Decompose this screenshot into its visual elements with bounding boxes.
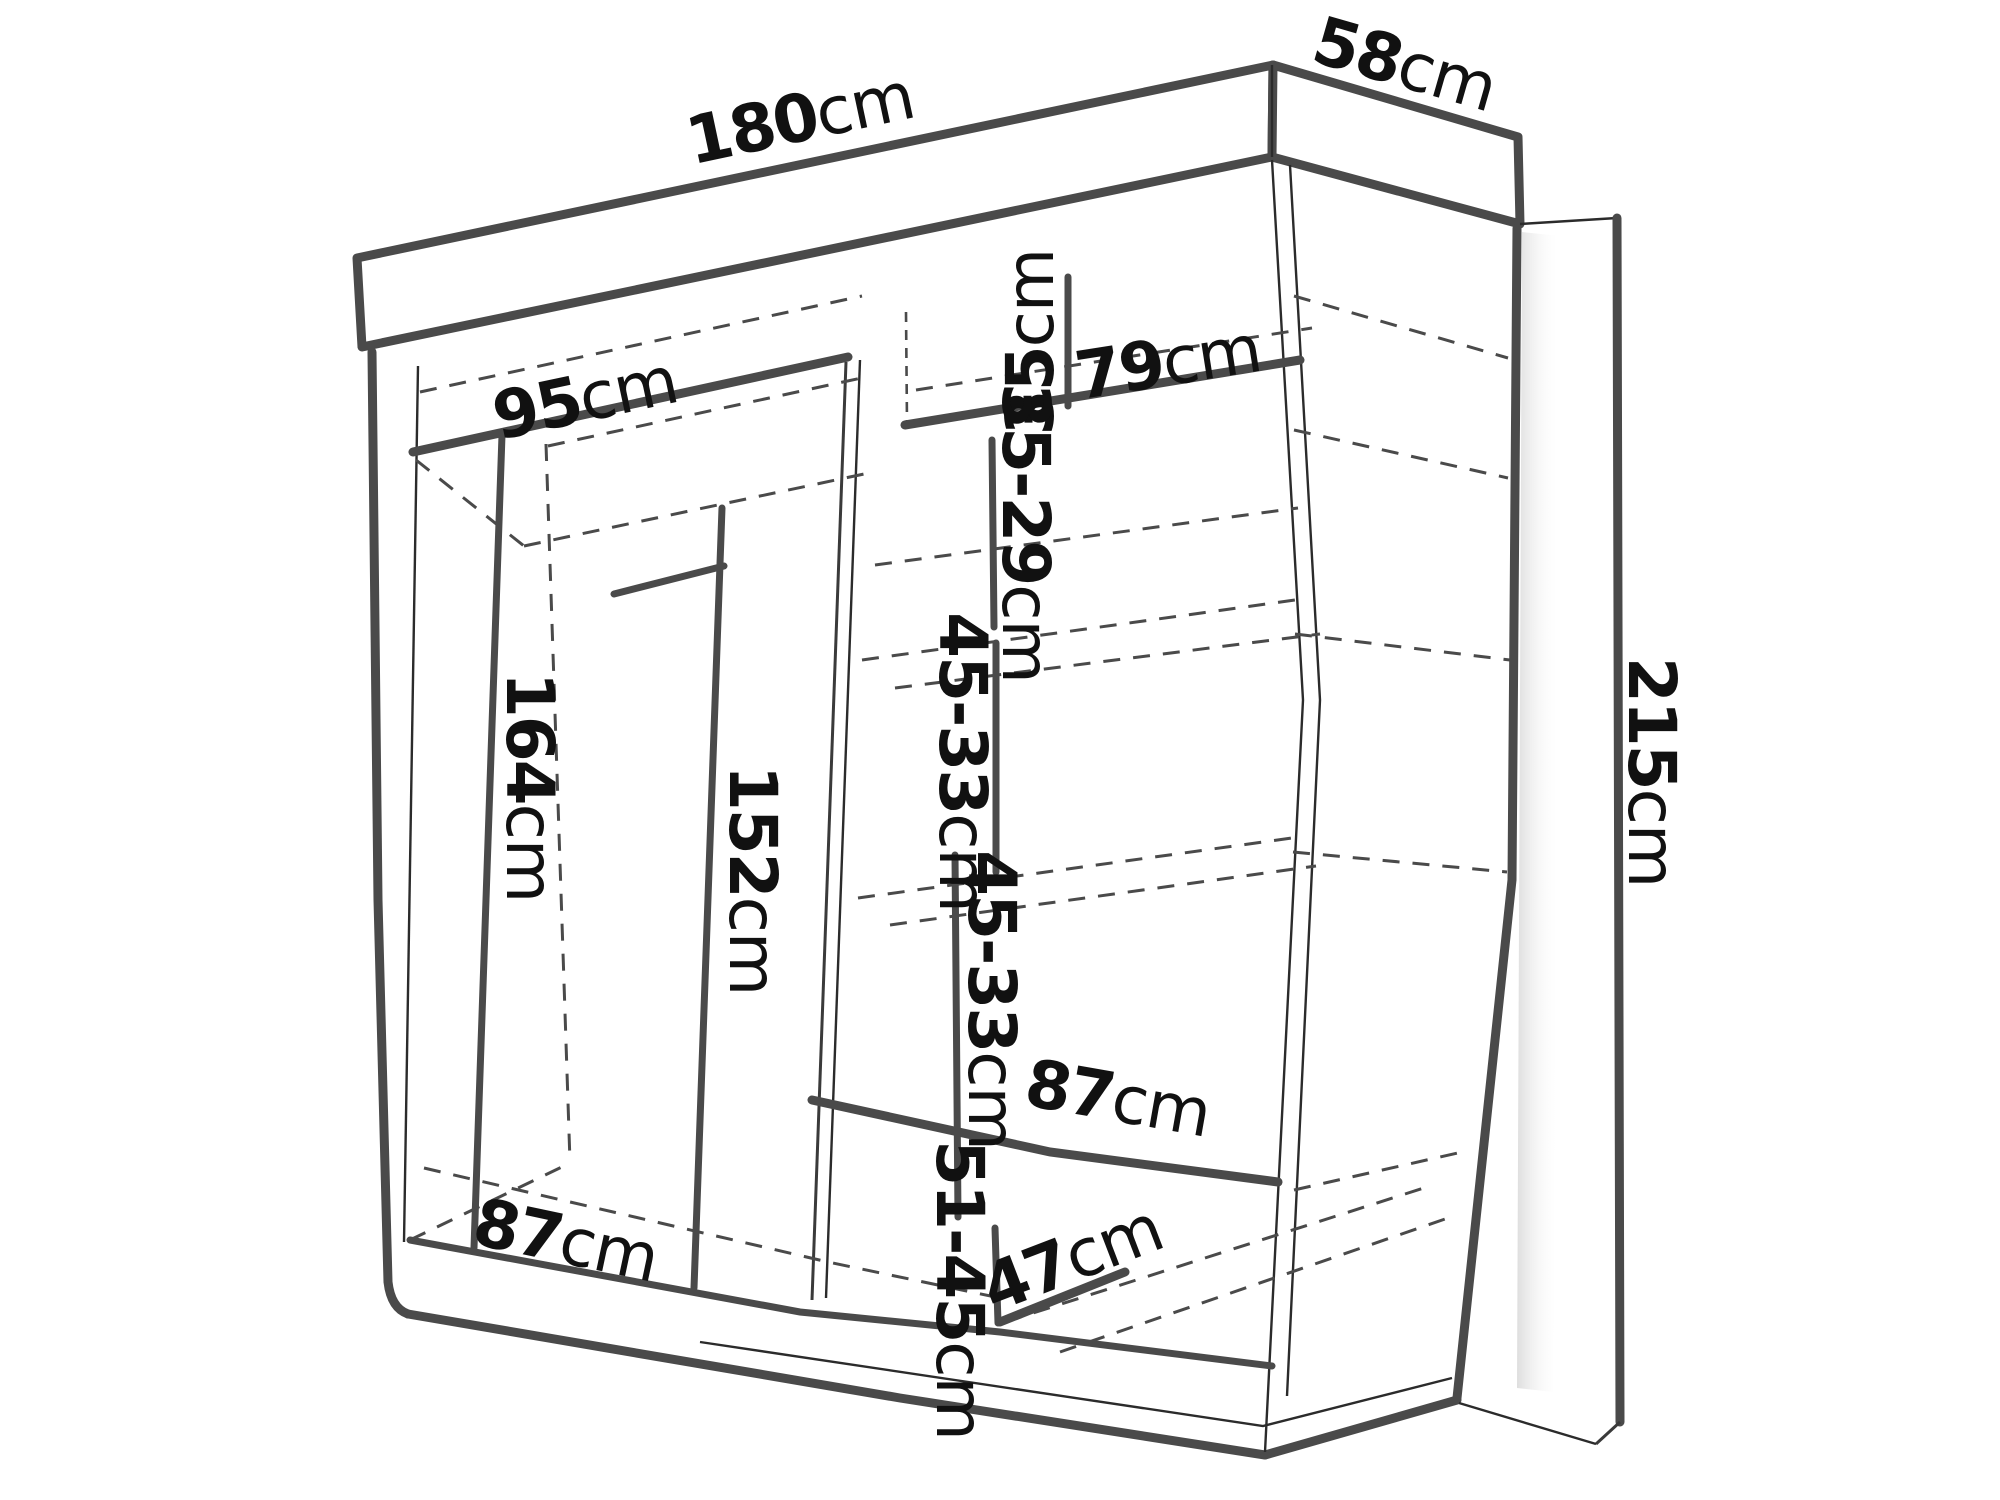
- dim-left-bay-width: 87cm: [467, 1183, 665, 1297]
- right-back-edge: [1457, 228, 1517, 1398]
- top-shelf-left-support: [906, 312, 907, 423]
- dim-rod-height: 164cm: [492, 672, 569, 902]
- side-panel-bottom-edge: [1596, 1422, 1620, 1444]
- dim-right-shelf-width: 87cm: [1020, 1044, 1217, 1152]
- dim-line-152-tick: [614, 566, 724, 594]
- side-depth-dashed-4: [1293, 852, 1507, 872]
- crown-top-panel: [357, 65, 1520, 347]
- side-depth-dashed-2: [1294, 430, 1508, 478]
- left-wall-inner-edge: [404, 366, 418, 1242]
- dim-top-shelf-width: 79cm: [1070, 309, 1266, 414]
- rod-back-dashed: [524, 474, 864, 546]
- shelf-level3-front-dashed: [858, 838, 1292, 898]
- bottom-front-edge: [408, 1314, 1265, 1455]
- side-depth-dashed-5: [1294, 1152, 1462, 1190]
- rod-depth-dashed: [416, 460, 524, 546]
- side-depth-dashed-3: [1295, 634, 1510, 660]
- center-divider-front: [812, 362, 846, 1300]
- center-divider-back: [826, 360, 860, 1298]
- diagram-canvas: 180cm 58cm 215cm 95cm 79cm 35cm 35-29cm …: [0, 0, 2000, 1500]
- right-wall-inner-edge: [1287, 165, 1320, 1396]
- side-panel-bottom-link: [1459, 1403, 1596, 1444]
- side-shading: [1517, 232, 1560, 1392]
- shelf-pos-29-dashed: [875, 508, 1298, 565]
- side-panel-top-edge: [1520, 218, 1617, 224]
- dim-height-side: 215cm: [1614, 657, 1691, 887]
- left-edge: [372, 352, 408, 1314]
- front-right-edge: [1265, 160, 1303, 1452]
- side-depth-dashed-1: [1294, 296, 1508, 358]
- left-bay: [413, 357, 860, 1300]
- dim-inner-height: 152cm: [715, 765, 792, 995]
- dim-mid-shelf-gap-2: 45-33cm: [954, 850, 1031, 1150]
- dim-bottom-depth: 47cm: [971, 1189, 1173, 1328]
- bottom-side-edge: [1265, 1400, 1457, 1455]
- wardrobe-diagram: 180cm 58cm 215cm 95cm 79cm 35cm 35-29cm …: [0, 0, 2000, 1500]
